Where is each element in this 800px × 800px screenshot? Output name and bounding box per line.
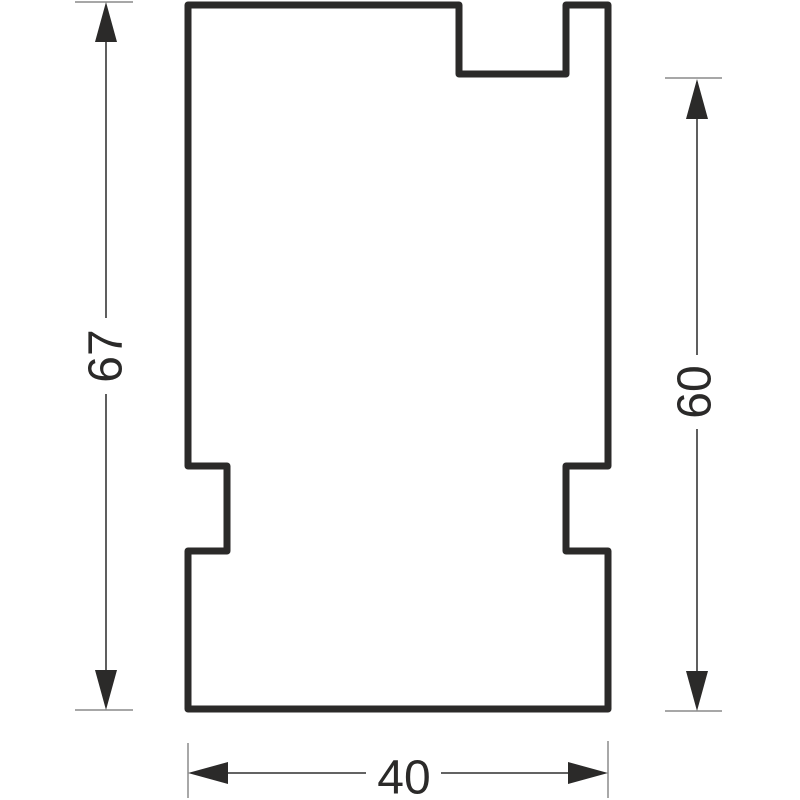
arrow-right-icon <box>568 762 608 784</box>
dimension-label-bottom: 40 <box>377 752 430 800</box>
technical-drawing: 67 60 40 <box>0 0 800 800</box>
arrow-up-icon <box>686 79 708 119</box>
arrow-up-icon <box>95 2 117 42</box>
drawing-canvas: 67 60 40 <box>0 0 800 800</box>
dimension-bottom: 40 <box>188 741 608 800</box>
arrow-down-icon <box>95 670 117 710</box>
dimension-right: 60 <box>665 78 722 711</box>
dimension-label-right: 60 <box>669 365 722 418</box>
dimension-label-left: 67 <box>80 329 133 382</box>
arrow-left-icon <box>188 762 228 784</box>
arrow-down-icon <box>686 671 708 711</box>
profile-outline <box>188 5 608 709</box>
dimension-left: 67 <box>75 2 133 710</box>
profile-outline-group <box>188 5 608 709</box>
